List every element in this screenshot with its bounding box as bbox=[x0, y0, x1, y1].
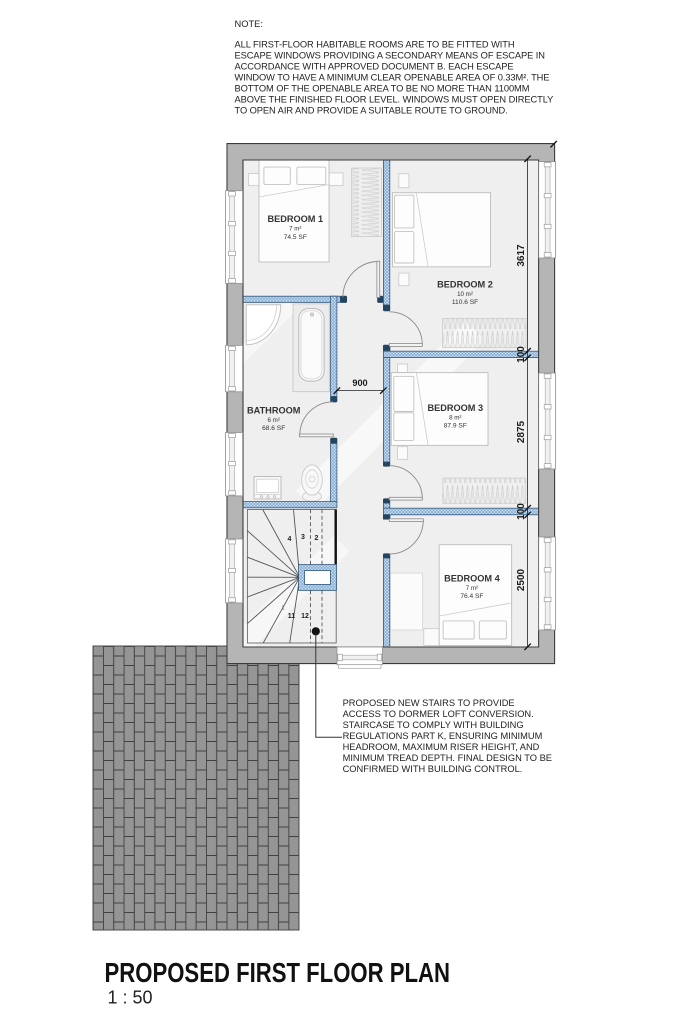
svg-text:3617: 3617 bbox=[516, 244, 527, 267]
svg-text:11: 11 bbox=[288, 613, 296, 620]
svg-text:BEDROOM 2: BEDROOM 2 bbox=[437, 280, 493, 290]
svg-text:STAIRCASE TO COMPLY WITH BUILD: STAIRCASE TO COMPLY WITH BUILDING bbox=[343, 720, 524, 730]
svg-text:REGULATIONS PART K, ENSURING M: REGULATIONS PART K, ENSURING MINIMUM bbox=[343, 731, 543, 741]
svg-text:12: 12 bbox=[301, 613, 309, 620]
svg-text:PROPOSED NEW STAIRS TO PROVIDE: PROPOSED NEW STAIRS TO PROVIDE bbox=[343, 698, 515, 708]
svg-text:74.5 SF: 74.5 SF bbox=[284, 234, 307, 241]
svg-text:2: 2 bbox=[315, 535, 319, 542]
svg-text:100: 100 bbox=[516, 346, 527, 363]
svg-text:HEADROOM, MAXIMUM RISER HEIGHT: HEADROOM, MAXIMUM RISER HEIGHT, AND bbox=[343, 742, 540, 752]
svg-text:2500: 2500 bbox=[516, 568, 527, 591]
svg-text:10 m²: 10 m² bbox=[457, 291, 473, 298]
svg-text:CONFIRMED WITH BUILDING CONTRO: CONFIRMED WITH BUILDING CONTROL. bbox=[343, 764, 523, 774]
svg-text:ACCORDANCE WITH APPROVED DOCUM: ACCORDANCE WITH APPROVED DOCUMENT B. EAC… bbox=[235, 62, 514, 72]
svg-text:76.4 SF: 76.4 SF bbox=[460, 593, 483, 600]
svg-text:TO OPEN AIR AND PROVIDE A SUIT: TO OPEN AIR AND PROVIDE A SUITABLE ROUTE… bbox=[235, 106, 508, 116]
svg-text:7 m²: 7 m² bbox=[289, 226, 301, 233]
svg-text:ESCAPE WINDOWS PROVIDING A SEC: ESCAPE WINDOWS PROVIDING A SECONDARY MEA… bbox=[235, 51, 545, 61]
svg-text:NOTE:: NOTE: bbox=[235, 19, 263, 29]
svg-text:900: 900 bbox=[352, 378, 367, 388]
svg-text:4: 4 bbox=[288, 536, 292, 543]
svg-text:110.6 SF: 110.6 SF bbox=[452, 299, 478, 306]
svg-text:BEDROOM 3: BEDROOM 3 bbox=[427, 403, 483, 413]
svg-text:BATHROOM: BATHROOM bbox=[247, 406, 301, 416]
svg-text:MINIMUM TREAD DEPTH. FINAL DES: MINIMUM TREAD DEPTH. FINAL DESIGN TO BE bbox=[343, 753, 552, 763]
svg-text:WINDOW TO HAVE A MINIMUM CLEAR: WINDOW TO HAVE A MINIMUM CLEAR OPENABLE … bbox=[235, 73, 550, 83]
svg-text:1 : 50: 1 : 50 bbox=[108, 988, 153, 1008]
svg-text:ABOVE THE FINISHED FLOOR LEVEL: ABOVE THE FINISHED FLOOR LEVEL. WINDOWS … bbox=[235, 95, 554, 105]
svg-text:1: 1 bbox=[281, 606, 284, 612]
svg-text:ALL FIRST-FLOOR HABITABLE ROOM: ALL FIRST-FLOOR HABITABLE ROOMS ARE TO B… bbox=[235, 40, 515, 50]
svg-text:ACCESS TO DORMER LOFT CONVERSI: ACCESS TO DORMER LOFT CONVERSION. bbox=[343, 709, 534, 719]
svg-text:PROPOSED FIRST FLOOR PLAN: PROPOSED FIRST FLOOR PLAN bbox=[105, 957, 451, 988]
svg-text:7 m²: 7 m² bbox=[466, 585, 478, 592]
svg-text:BEDROOM 4: BEDROOM 4 bbox=[444, 574, 501, 584]
svg-text:8 m²: 8 m² bbox=[449, 414, 461, 421]
svg-text:BOTTOM OF THE OPENABLE AREA TO: BOTTOM OF THE OPENABLE AREA TO BE NO MOR… bbox=[235, 84, 530, 94]
svg-text:2875: 2875 bbox=[516, 420, 527, 443]
svg-text:100: 100 bbox=[516, 503, 527, 520]
svg-text:87.9 SF: 87.9 SF bbox=[444, 423, 467, 430]
svg-text:6 m²: 6 m² bbox=[268, 417, 280, 424]
svg-text:68.6 SF: 68.6 SF bbox=[262, 425, 285, 432]
svg-text:BEDROOM 1: BEDROOM 1 bbox=[267, 214, 323, 224]
svg-text:3: 3 bbox=[301, 534, 305, 541]
